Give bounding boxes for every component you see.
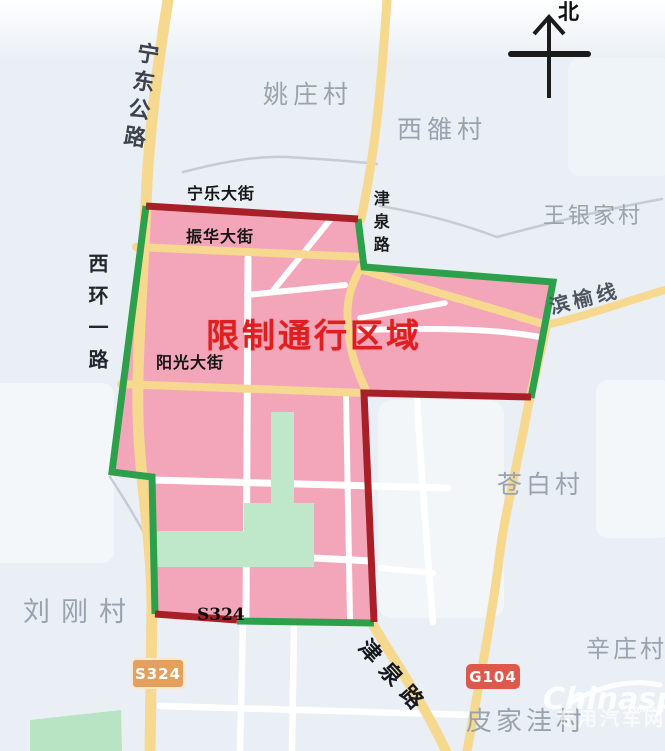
watermark-caption: 专用汽车网 — [556, 710, 665, 730]
g104-route-badge: G104 — [466, 664, 520, 689]
village-liugang: 刘刚村 — [23, 599, 137, 627]
village-yaozhuang: 姚庄村 — [263, 82, 353, 108]
road-label-ningle-street: 宁乐大街 — [187, 186, 255, 203]
road-label-jinquan-top: 津泉路 — [371, 190, 388, 259]
village-cangbai: 苍白村 — [497, 472, 584, 498]
road-label-xihuan-first: 西环一路 — [86, 253, 107, 381]
village-wangyinjia: 王银家村 — [543, 205, 643, 228]
s324-route-badge: S324 — [131, 658, 185, 689]
compass-north-label: 北 — [558, 1, 579, 23]
village-xinzhuang: 辛庄村 — [586, 637, 665, 662]
restricted-zone-title: 限制通行区域 — [206, 319, 422, 354]
road-label-zhenhua-street: 振华大街 — [186, 229, 254, 246]
village-xiluo: 西雒村 — [397, 117, 487, 143]
road-label-s324-text: S324 — [197, 607, 245, 625]
traffic-restriction-map: 北 姚庄村 西雒村 王银家村 宁东公路 宁乐大街 津泉路 振华大街 西环一路 滨… — [0, 0, 665, 751]
road-label-yangguang-street: 阳光大街 — [156, 355, 224, 372]
